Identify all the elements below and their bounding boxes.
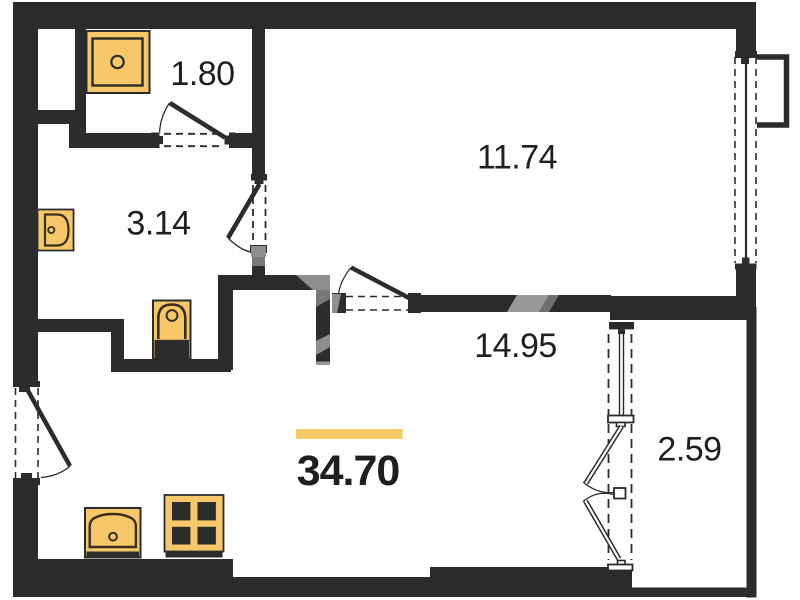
svg-text:34.70: 34.70 <box>297 447 400 495</box>
svg-text:3.14: 3.14 <box>126 205 190 243</box>
svg-text:2.59: 2.59 <box>657 431 721 469</box>
svg-text:11.74: 11.74 <box>477 139 557 177</box>
svg-text:1.80: 1.80 <box>170 55 234 93</box>
svg-text:14.95: 14.95 <box>474 327 557 365</box>
